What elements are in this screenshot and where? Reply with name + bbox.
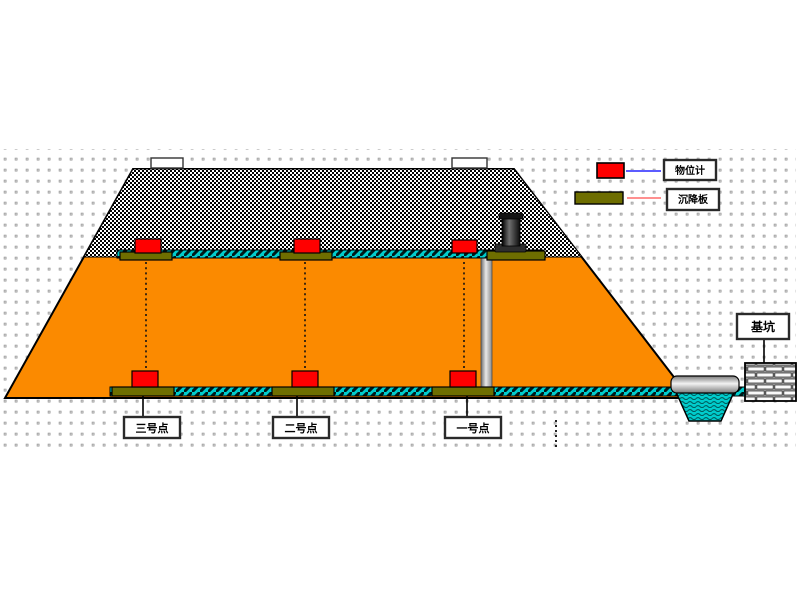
- monitoring-diagram: 基坑 三号点 二号点 一号点 物位计 沉降板: [0, 0, 800, 600]
- lower-gauge-point3[interactable]: [132, 371, 158, 387]
- standpipe-body: [502, 218, 520, 246]
- label-text-point2: 二号点: [285, 421, 318, 435]
- riser-pipe: [481, 256, 492, 393]
- label-text-point1: 一号点: [457, 421, 490, 435]
- upper-gauge-point3[interactable]: [135, 239, 161, 253]
- legend-swatch-level-gauge: [597, 163, 624, 178]
- label-text-point3: 三号点: [136, 421, 169, 435]
- legend-label-settlement-plate: 沉降板: [678, 193, 709, 206]
- roller-cylinder: [671, 376, 739, 393]
- upper-gauge-point1[interactable]: [452, 240, 477, 253]
- crest-marker-left: [151, 158, 183, 168]
- lower-plate-point1: [432, 387, 494, 396]
- lower-plate-point2: [272, 387, 334, 396]
- pit-label-text: 基坑: [750, 319, 775, 334]
- legend-swatch-settlement-plate: [575, 192, 623, 204]
- lower-plate-point3: [112, 387, 174, 396]
- upper-gauge-point2[interactable]: [294, 239, 320, 253]
- lower-gauge-point2[interactable]: [292, 371, 318, 387]
- brick-wall: [745, 363, 796, 401]
- lower-gauge-point1[interactable]: [450, 371, 476, 387]
- legend-label-level-gauge: 物位计: [675, 164, 705, 177]
- hmi-canvas: 基坑 三号点 二号点 一号点 物位计 沉降板: [0, 0, 800, 600]
- standpipe-cap: [499, 213, 523, 219]
- crest-marker-right: [452, 158, 487, 168]
